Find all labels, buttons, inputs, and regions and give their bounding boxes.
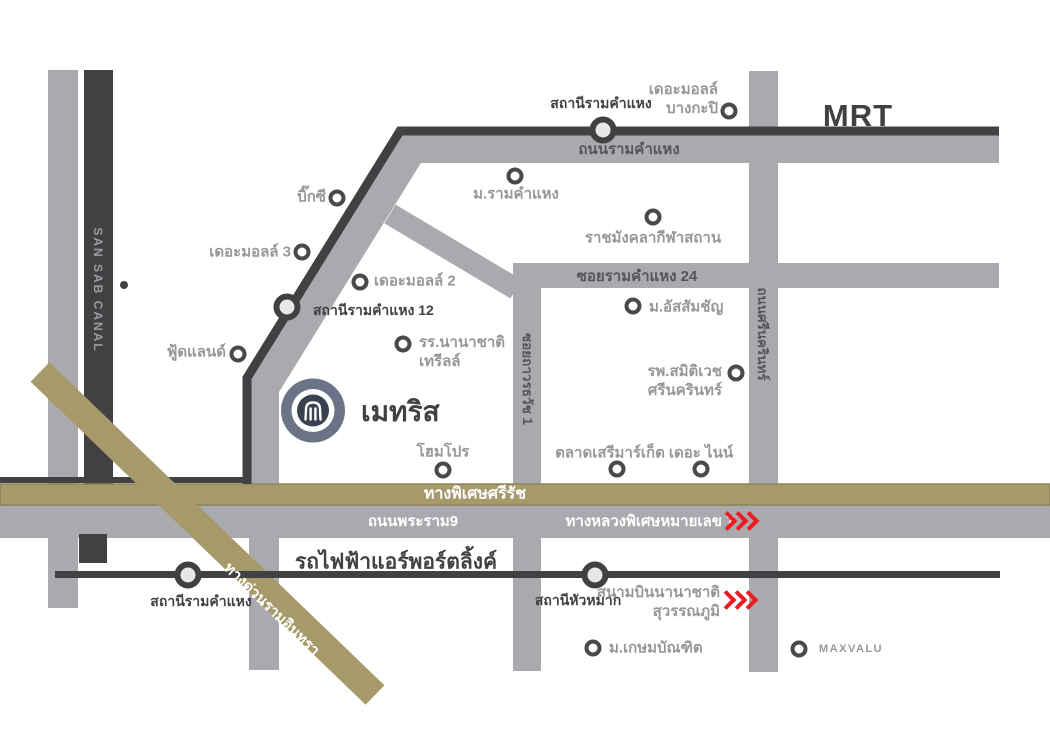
poi-label-traill-school: รร.นานาชาติ เทรีลล์ [419,333,505,371]
poi-dot-assumption-university [625,298,642,315]
poi-label-line: เทรีลล์ [419,352,505,371]
chevron-right-icon [740,511,760,531]
canal-label: SAN SAB CANAL [91,227,105,352]
road-ramkhamhaeng-top [400,134,999,163]
station-dot-ramkhamhaeng-arl [175,562,202,589]
poi-label-foodland: ฟู้ดแลนด์ [167,343,226,362]
poi-dot-samitivej-hospital [728,365,745,382]
chevron-right-icon [739,590,759,610]
station-label-ramkhamhaeng-mrt: สถานีรามคำแหง [550,93,651,115]
poi-label-line: เดอะมอลล์ [649,80,718,99]
road-label-rama9: ถนนพระราม9 [368,509,458,533]
motorway7-chevrons [724,514,757,528]
poi-dot-maxvalu [791,641,808,658]
poi-dot-the-mall-bangkapi [721,103,738,120]
poi-dot-kasem-bundit-university [585,640,602,657]
road-label-motorway7: ทางหลวงพิเศษหมายเลข 7 [566,509,735,533]
poi-label-samitivej-hospital: รพ.สมิติเวช ศรีนครินทร์ [647,362,722,400]
road-label-soi-ram-24: ซอยรามคำแหง 24 [577,264,698,288]
poi-label-assumption-university: ม.อัสสัมชัญ [649,298,723,317]
poi-label-the-nine: เดอะ ไนน์ [669,444,733,463]
logo-core [297,395,329,427]
poi-label-homepro: โฮมโปร [417,443,470,462]
road-rama9-band [0,504,1050,538]
poi-label-kasem-bundit-university: ม.เกษมบัณฑิต [609,639,703,658]
poi-label-line: ศรีนครินทร์ [647,381,722,400]
road-label-sirat-expressway: ทางพิเศษศรีรัช [424,482,526,507]
poi-label-seri-market: ตลาดเสรีมาร์เก็ต [555,444,665,463]
road-label-ramkhamhaeng: ถนนรามคำแหง [578,137,679,161]
poi-label-rajamangala-stadium: ราชมังคลากีฬาสถาน [585,229,721,248]
poi-label-line: สุวรรณภูมิ [597,602,720,621]
poi-dot-foodland [230,346,247,363]
airport-chevrons [723,593,756,607]
poi-label-big-c: บิ๊กซี [297,188,326,207]
poi-label-line: สนามบินนานาชาติ [597,583,720,602]
airport-destination-label: สนามบินนานาชาติ สุวรรณภูมิ [597,583,720,621]
canal-lower-stub [79,534,107,563]
poi-dot-rajamangala-stadium [645,209,662,226]
poi-label-maxvalu: MAXVALU [819,643,883,655]
road-ramkhamhaeng-diagonal [251,133,430,396]
poi-label-the-mall-2: เดอะมอลล์ 2 [374,272,456,291]
poi-dot-seri-market [609,461,626,478]
poi-dot-traill-school [395,336,412,353]
road-label-soi-thawonthawat: ซอยถาวรธวัช 1 [517,333,539,425]
metris-logo [280,378,346,449]
canal-dot [120,281,128,289]
poi-dot-the-mall-2 [352,274,369,291]
poi-dot-big-c [329,190,346,207]
poi-dot-homepro [435,462,452,479]
poi-dot-the-nine [693,461,710,478]
poi-dot-the-mall-3 [294,244,311,261]
road-label-srinakarin: ถนนศรีนครินทร์ [752,287,774,380]
project-name-label: เมทริส [361,390,440,434]
airport-link-label: รถไฟฟ้าแอร์พอร์ตลิ้งค์ [295,546,497,579]
dark-line-expressway-top [0,477,249,483]
poi-label-line: รร.นานาชาติ [419,333,505,352]
station-dot-ramkhamhaeng-12 [274,294,301,321]
poi-label-the-mall-bangkapi: เดอะมอลล์ บางกะปิ [649,80,718,118]
poi-dot-ramkhamhaeng-university [507,168,524,185]
poi-label-the-mall-3: เดอะมอลล์ 3 [209,243,291,262]
poi-label-line: บางกะปิ [649,99,718,118]
location-map: MRT รถไฟฟ้าแอร์พอร์ตลิ้งค์ สถานีรามคำแหง… [0,0,1050,743]
station-label-ramkhamhaeng-12: สถานีรามคำแหง 12 [313,300,434,322]
poi-label-line: รพ.สมิติเวช [647,362,722,381]
station-label-ramkhamhaeng-arl: สถานีรามคำแหง [150,591,251,613]
poi-label-ramkhamhaeng-university: ม.รามคำแหง [473,185,559,204]
mrt-label: MRT [823,98,893,134]
